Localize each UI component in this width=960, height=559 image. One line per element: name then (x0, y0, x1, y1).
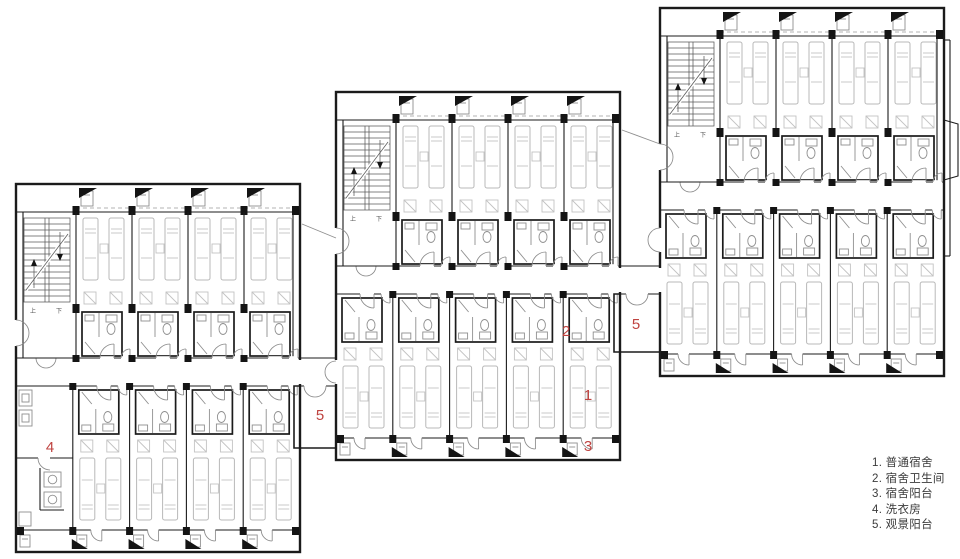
building-block-middle: 上下 (336, 92, 620, 460)
dorm-room (183, 383, 241, 541)
bed (541, 126, 556, 188)
bed (106, 458, 121, 520)
bathroom-pod (399, 298, 439, 342)
bed (693, 282, 708, 344)
dorm-room (69, 383, 127, 541)
bed (221, 218, 236, 280)
stair-flights (344, 126, 390, 210)
bed (894, 282, 909, 344)
bed (277, 218, 292, 280)
bed (400, 366, 415, 428)
bed (426, 366, 441, 428)
bed (165, 218, 180, 280)
plan-number-label: 2 (562, 323, 570, 340)
dorm-room (884, 207, 942, 365)
bed (195, 218, 210, 280)
dorm-room (389, 291, 447, 449)
bed (895, 42, 910, 104)
stair-down-label: 下 (700, 132, 706, 139)
bed (343, 366, 358, 428)
legend-item: 3. 宿舍阳台 (872, 487, 945, 503)
staircase: 上下 (660, 36, 720, 192)
bathroom-pod (456, 298, 496, 342)
bed (863, 282, 878, 344)
bed (483, 366, 498, 428)
dorm-room (126, 383, 184, 541)
right-block-east-wing (944, 40, 958, 256)
stair-down-label: 下 (56, 308, 62, 315)
bed (429, 126, 444, 188)
bed (921, 42, 936, 104)
bathroom-pod (249, 390, 289, 434)
bathroom-pod (666, 214, 706, 258)
top-balcony-strip (660, 12, 944, 39)
dorm-room (449, 120, 507, 270)
bathroom-pod (458, 220, 498, 264)
top-balcony-strip (336, 96, 620, 123)
dorm-room (16, 390, 73, 526)
bed (163, 458, 178, 520)
floor-plan-canvas: 上下上下上下452135 1. 普通宿舍2. 宿舍卫生间3. 宿舍阳台4. 洗衣… (0, 0, 960, 559)
bed (920, 282, 935, 344)
dorm-room (505, 120, 563, 270)
dorm-room (240, 383, 298, 541)
bathroom-pod (569, 298, 609, 342)
bed (250, 458, 265, 520)
dorm-room (342, 294, 390, 449)
staircase: 上下 (16, 212, 76, 368)
bathroom-pod (138, 312, 178, 356)
bed (837, 282, 852, 344)
dorm-room (885, 36, 943, 186)
dorm-room (713, 207, 771, 365)
bathroom-pod (136, 390, 176, 434)
bed (515, 126, 530, 188)
bed (781, 282, 796, 344)
bed (251, 218, 266, 280)
dorm-room (393, 126, 451, 270)
dorm-room (827, 207, 885, 365)
bed (753, 42, 768, 104)
legend-item: 2. 宿舍卫生间 (872, 472, 945, 488)
dorm-room (770, 207, 828, 365)
washing-machine (44, 492, 61, 507)
bathroom-pod (726, 136, 766, 180)
bed (727, 42, 742, 104)
bed (807, 282, 822, 344)
bed (276, 458, 291, 520)
bed (539, 366, 554, 428)
bed (193, 458, 208, 520)
legend-item: 5. 观景阳台 (872, 518, 945, 534)
dorm-room (717, 42, 775, 186)
dorm-room (560, 291, 618, 449)
bed (809, 42, 824, 104)
stair-up-label: 上 (350, 215, 356, 223)
bed (403, 126, 418, 188)
bed (137, 458, 152, 520)
bed (597, 126, 612, 188)
dorm-room (829, 36, 887, 186)
plan-number-label: 1 (584, 387, 592, 404)
top-balcony-strip (16, 188, 300, 215)
building-block-right: 上下 (660, 8, 944, 376)
stair-flights (668, 42, 714, 126)
bed (109, 218, 124, 280)
bed (571, 126, 586, 188)
bed (80, 458, 95, 520)
bed (457, 366, 472, 428)
stair-flights (24, 218, 70, 302)
bed (485, 126, 500, 188)
plan-number-label: 5 (632, 316, 640, 333)
bed (459, 126, 474, 188)
bed (865, 42, 880, 104)
dorm-room (241, 212, 299, 362)
stair-up-label: 上 (30, 307, 36, 315)
bathroom-pod (402, 220, 442, 264)
bathroom-pod (893, 214, 933, 258)
bathroom-pod (514, 220, 554, 264)
bed (750, 282, 765, 344)
dorm-room (185, 212, 243, 362)
washing-machine (44, 472, 61, 487)
dorm-room (666, 210, 714, 365)
bathroom-pod (194, 312, 234, 356)
bathroom-pod (780, 214, 820, 258)
bathroom-pod (192, 390, 232, 434)
bed (369, 366, 384, 428)
bathroom-pod (342, 298, 382, 342)
bed (596, 366, 611, 428)
staircase: 上下 (336, 120, 396, 276)
plan-number-label: 4 (46, 439, 54, 456)
bed (783, 42, 798, 104)
bed (219, 458, 234, 520)
bathroom-pod (79, 390, 119, 434)
bathroom-pod (512, 298, 552, 342)
stair-up-label: 上 (674, 131, 680, 139)
dorm-room (129, 212, 187, 362)
bed (839, 42, 854, 104)
plan-number-label: 3 (584, 438, 592, 455)
legend-item: 4. 洗衣房 (872, 503, 945, 519)
legend: 1. 普通宿舍2. 宿舍卫生间3. 宿舍阳台4. 洗衣房5. 观景阳台 (872, 456, 945, 534)
laundry-room (16, 390, 73, 526)
dorm-room (503, 291, 561, 449)
bathroom-pod (250, 312, 290, 356)
bathroom-pod (782, 136, 822, 180)
floor-plan-svg: 上下上下上下452135 (0, 0, 960, 559)
bed (139, 218, 154, 280)
dorm-room (446, 291, 504, 449)
bathroom-pod (570, 220, 610, 264)
bed (513, 366, 528, 428)
bed (667, 282, 682, 344)
bed (724, 282, 739, 344)
stair-down-label: 下 (376, 216, 382, 223)
dorm-room (561, 120, 619, 270)
dorm-room (73, 218, 131, 362)
bathroom-pod (82, 312, 122, 356)
bathroom-pod (836, 214, 876, 258)
bed (83, 218, 98, 280)
legend-item: 1. 普通宿舍 (872, 456, 945, 472)
building-block-left: 上下 (16, 184, 300, 552)
bathroom-pod (894, 136, 934, 180)
bathroom-pod (838, 136, 878, 180)
dorm-room (773, 36, 831, 186)
bathroom-pod (723, 214, 763, 258)
plan-number-label: 5 (316, 407, 324, 424)
